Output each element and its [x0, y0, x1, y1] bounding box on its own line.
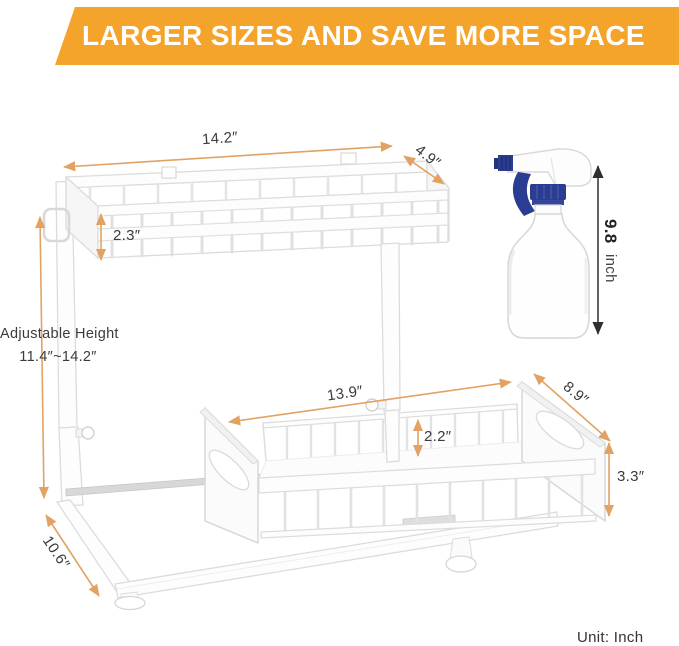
adjustable-height-title: Adjustable Height [0, 326, 116, 343]
spray-bottle-illustration [494, 149, 591, 338]
adjustable-height-label: Adjustable Height 11.4″~14.2″ [0, 326, 116, 366]
foot-left [115, 597, 145, 610]
upper-basket [44, 153, 449, 258]
dim-lower-side-height-label: 3.3″ [617, 468, 644, 485]
bottle-height-value-label: 9.8 [600, 219, 620, 244]
bottle-body [508, 214, 589, 338]
height-adjust-knob-left [82, 427, 94, 439]
dim-top-width-label: 14.2″ [201, 129, 238, 148]
bottle-height-unit-label: inch [602, 254, 619, 283]
adjustable-height-range: 11.4″~14.2″ [0, 349, 116, 366]
foot-right [446, 556, 476, 572]
bottle-collar [530, 184, 566, 200]
dim-upper-basket-height-label: 2.3″ [113, 227, 140, 244]
organizer-diagram [0, 0, 679, 646]
unit-note: Unit: Inch [577, 629, 643, 646]
dim-lower-rail-height-label: 2.2″ [424, 428, 451, 445]
